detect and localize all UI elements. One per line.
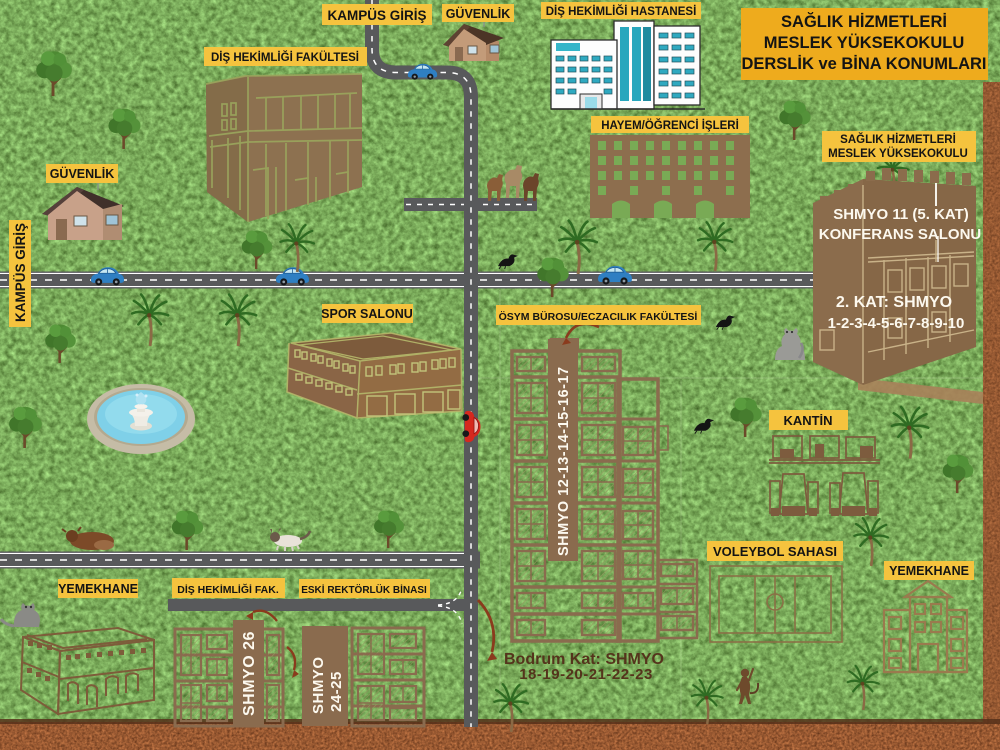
svg-text:24-25: 24-25 — [328, 671, 345, 712]
svg-text:DİŞ HEKİMLİĞİ FAKÜLTESİ: DİŞ HEKİMLİĞİ FAKÜLTESİ — [211, 51, 359, 64]
svg-text:ÖSYM BÜROSU/ECZACILIK FAKÜLTES: ÖSYM BÜROSU/ECZACILIK FAKÜLTESİ — [499, 310, 698, 323]
svg-text:SAĞLIK HİZMETLERİ: SAĞLIK HİZMETLERİ — [781, 12, 947, 31]
svg-text:SHMYO: SHMYO — [310, 656, 327, 714]
svg-text:MESLEK YÜKSEKOKULU: MESLEK YÜKSEKOKULU — [764, 33, 964, 52]
svg-text:MESLEK YÜKSEKOKULU: MESLEK YÜKSEKOKULU — [828, 147, 968, 160]
svg-text:SHMYO 12-13-14-15-16-17: SHMYO 12-13-14-15-16-17 — [556, 366, 572, 556]
svg-text:KONFERANS SALONU: KONFERANS SALONU — [819, 226, 982, 243]
svg-text:ESKİ REKTÖRLÜK BİNASI: ESKİ REKTÖRLÜK BİNASI — [301, 583, 427, 596]
svg-text:KAMPÜS GİRİŞ: KAMPÜS GİRİŞ — [327, 8, 426, 23]
svg-text:GÜVENLİK: GÜVENLİK — [446, 6, 511, 21]
svg-text:SPOR SALONU: SPOR SALONU — [321, 307, 413, 321]
svg-text:YEMEKHANE: YEMEKHANE — [889, 564, 969, 578]
svg-text:VOLEYBOL SAHASI: VOLEYBOL SAHASI — [713, 544, 837, 559]
svg-text:YEMEKHANE: YEMEKHANE — [58, 582, 138, 596]
svg-text:2. KAT: SHMYO: 2. KAT: SHMYO — [836, 294, 952, 311]
svg-text:DERSLİK ve BİNA KONUMLARI: DERSLİK ve BİNA KONUMLARI — [741, 55, 986, 73]
svg-text:DİŞ HEKİMLİĞİ FAK.: DİŞ HEKİMLİĞİ FAK. — [177, 583, 279, 596]
svg-text:1-2-3-4-5-6-7-8-9-10: 1-2-3-4-5-6-7-8-9-10 — [828, 315, 965, 332]
svg-text:KANTİN: KANTİN — [783, 413, 832, 428]
svg-text:KAMPÜS GİRİŞ: KAMPÜS GİRİŞ — [13, 223, 28, 322]
svg-text:18-19-20-21-22-23: 18-19-20-21-22-23 — [519, 666, 653, 683]
svg-text:SHMYO 26: SHMYO 26 — [241, 631, 258, 716]
svg-text:DİŞ HEKİMLİĞİ HASTANESİ: DİŞ HEKİMLİĞİ HASTANESİ — [546, 5, 697, 18]
svg-text:GÜVENLİK: GÜVENLİK — [50, 166, 115, 181]
svg-text:SAĞLIK HİZMETLERİ: SAĞLIK HİZMETLERİ — [840, 133, 956, 146]
svg-text:SHMYO 11 (5. KAT): SHMYO 11 (5. KAT) — [833, 206, 969, 223]
svg-text:HAYEM/ÖĞRENCİ İŞLERİ: HAYEM/ÖĞRENCİ İŞLERİ — [601, 119, 739, 132]
